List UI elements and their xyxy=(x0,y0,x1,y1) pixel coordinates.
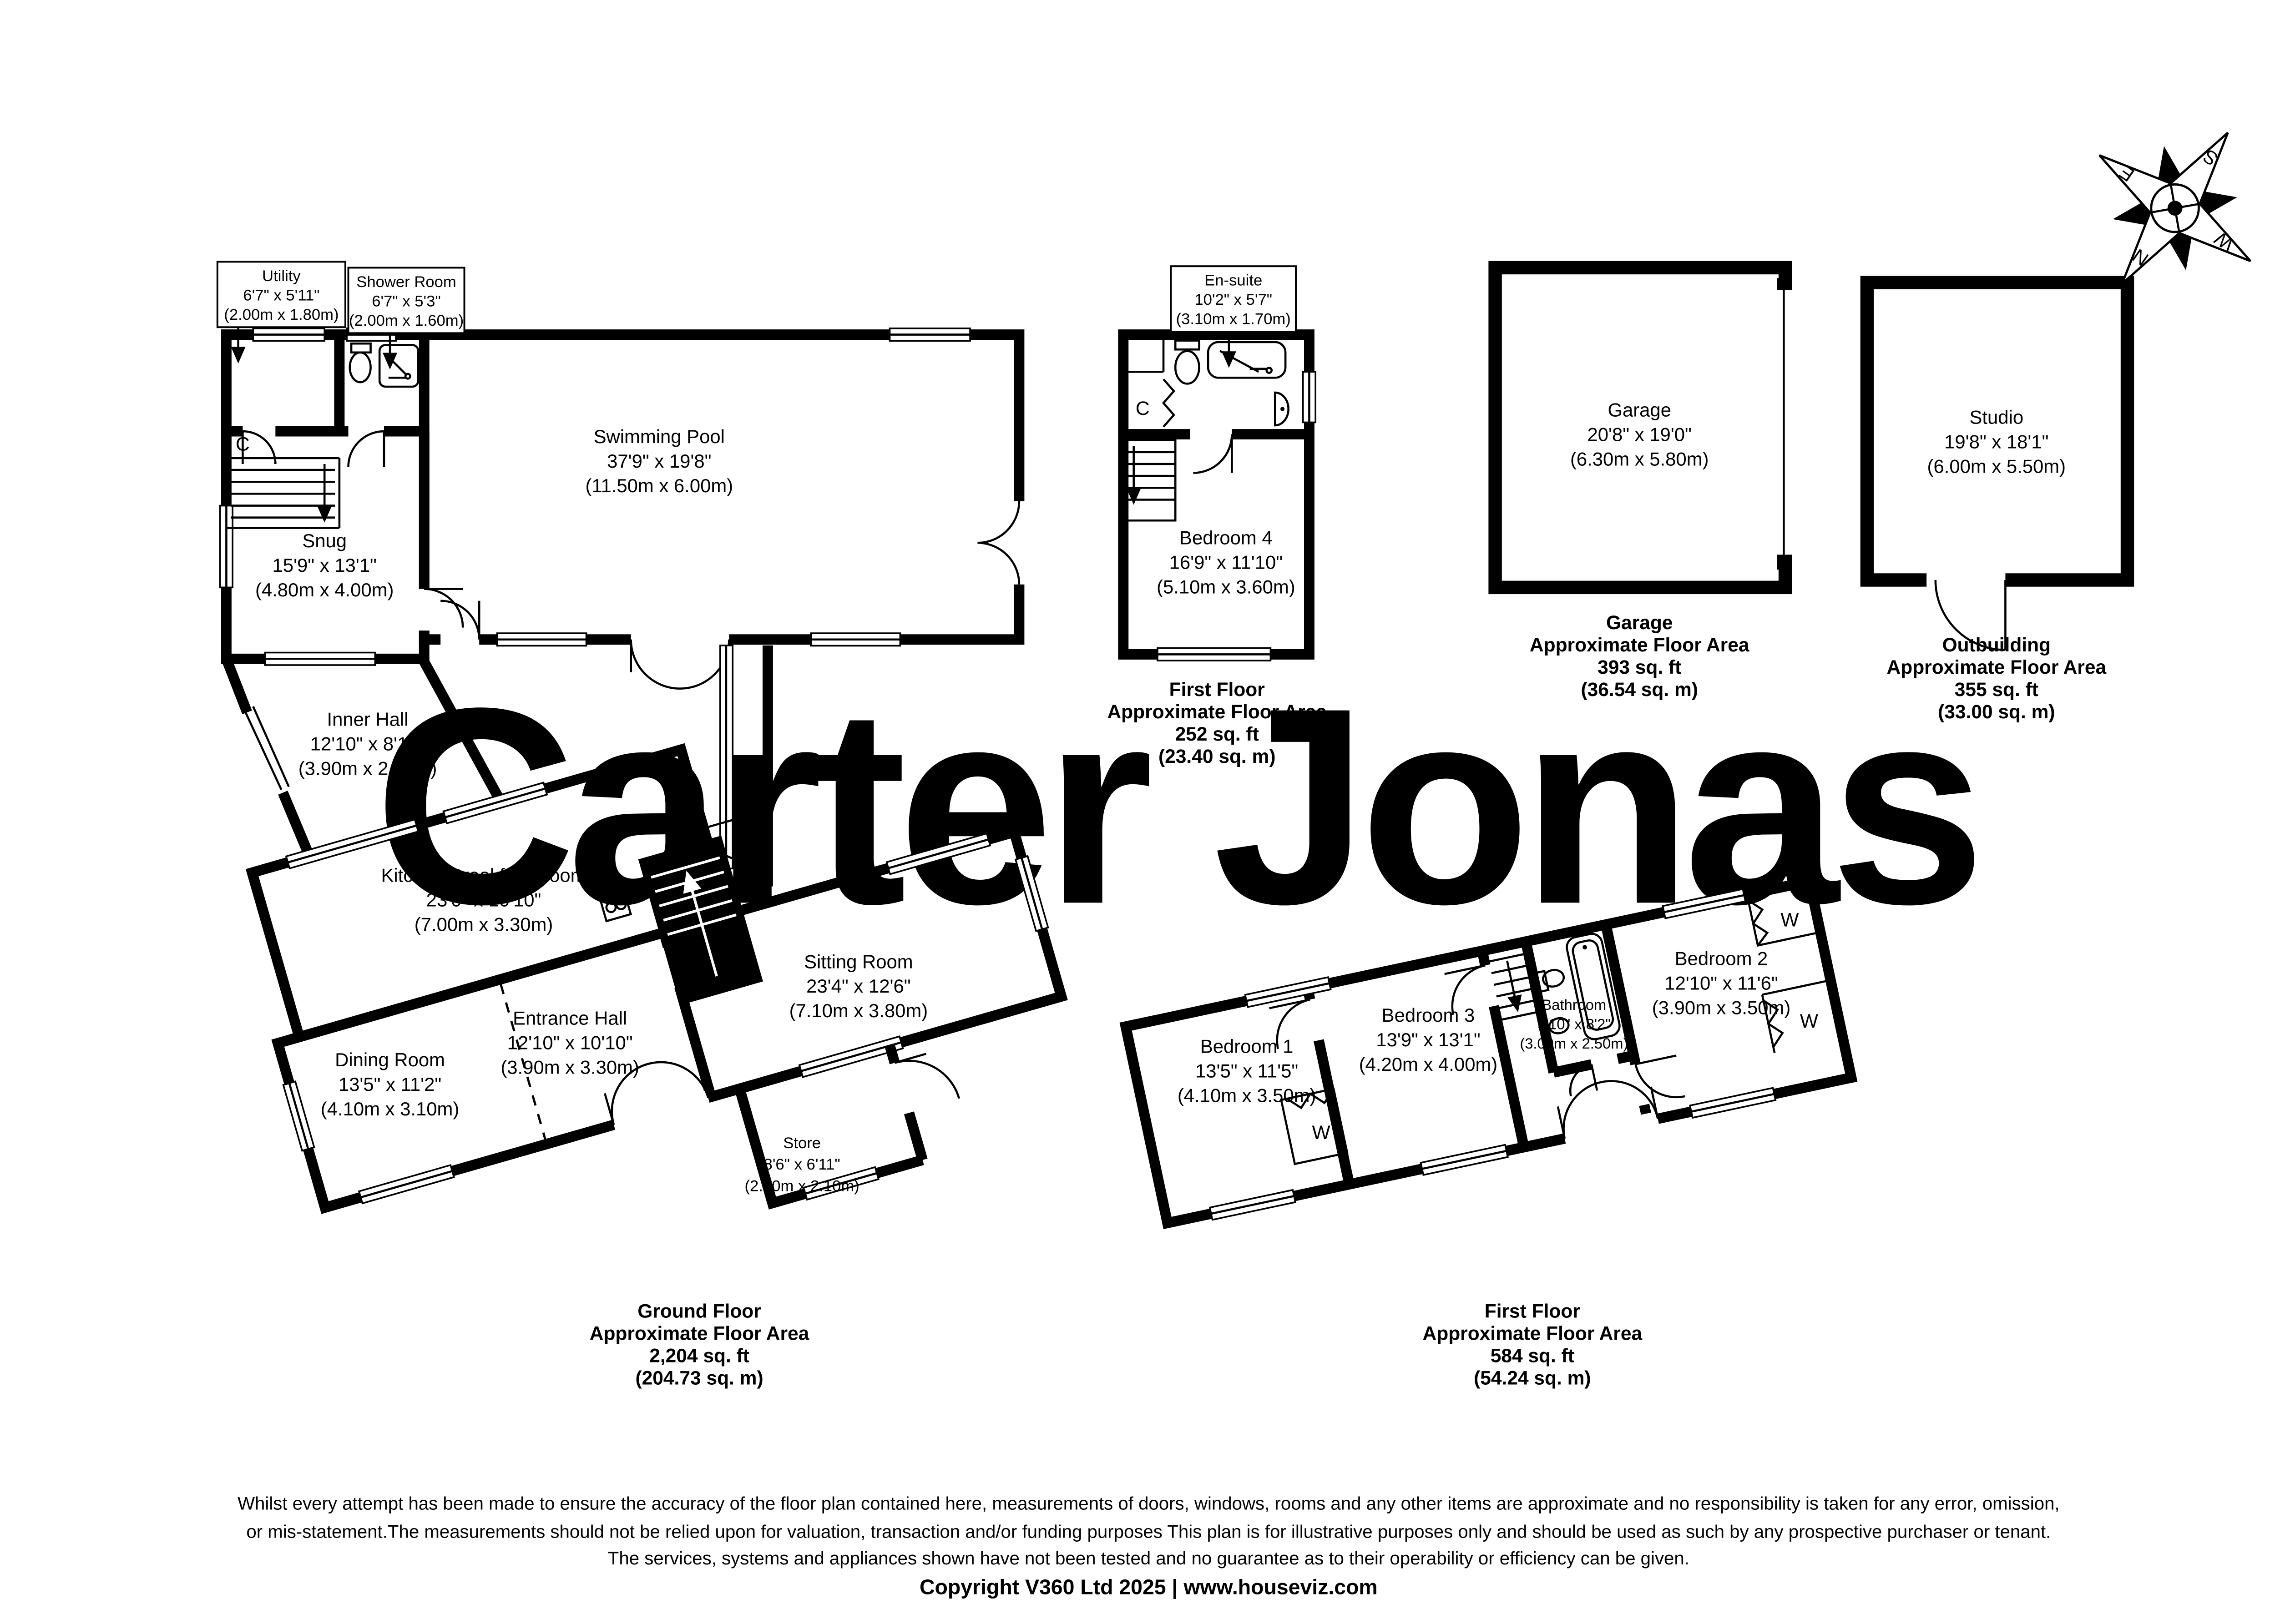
sitting-label-imperial: 23'4" x 12'6" xyxy=(806,975,910,997)
garage-summary-aream: (36.54 sq. m) xyxy=(1581,679,1698,701)
outbuilding-summary-subtitle: Approximate Floor Area xyxy=(1887,657,2107,678)
ground-stairs xyxy=(226,458,339,528)
utility-label-name: Utility xyxy=(262,267,301,285)
dining-label-imperial: 13'5" x 11'2" xyxy=(339,1074,441,1095)
wardrobe-letter-1: W xyxy=(1312,1122,1330,1144)
store-label-name: Store xyxy=(783,1135,821,1152)
ensuite-label-metric: (3.10m x 1.70m) xyxy=(1176,311,1291,328)
utility-label-metric: (2.00m x 1.80m) xyxy=(224,306,339,323)
ground-summary-areaft: 2,204 sq. ft xyxy=(649,1346,749,1367)
annex-room-labels: Bedroom 4 16'9" x 11'10" (5.10m x 3.60m)… xyxy=(1136,398,1295,597)
firstfloor-summary-title: First Floor xyxy=(1485,1301,1580,1322)
floorplan-page: Carter Jonas xyxy=(0,0,2275,1624)
outbuilding-summary-aream: (33.00 sq. m) xyxy=(1938,701,2055,723)
annex-closet-letter: C xyxy=(1136,398,1150,419)
disclaimer-line-3: The services, systems and appliances sho… xyxy=(608,1548,1689,1569)
inner-hall-label-imperial: 12'10" x 8'10" xyxy=(310,733,425,754)
bedroom1-label-metric: (4.10m x 3.50m) xyxy=(1178,1084,1316,1106)
bedroom2-label-name: Bedroom 2 xyxy=(1675,948,1768,969)
bathroom-label-metric: (3.00m x 2.50m) xyxy=(1520,1035,1628,1052)
snug-label-imperial: 15'9" x 13'1" xyxy=(273,555,377,576)
annex-summary-aream: (23.40 sq. m) xyxy=(1158,746,1275,767)
firstfloor-summary-subtitle: Approximate Floor Area xyxy=(1423,1323,1643,1345)
studio-label-name: Studio xyxy=(1970,407,2024,428)
garage-summary-subtitle: Approximate Floor Area xyxy=(1530,635,1749,656)
outbuilding-summary-title: Outbuilding xyxy=(1942,635,2051,656)
first-floor-annex-plan xyxy=(1123,335,1315,661)
bedroom3-label-name: Bedroom 3 xyxy=(1382,1004,1475,1026)
disclaimer-line-1: Whilst every attempt has been made to en… xyxy=(238,1493,2060,1513)
outbuilding-room-labels: Garage 20'8" x 19'0" (6.30m x 5.80m) Stu… xyxy=(1570,399,2066,477)
snug-label-metric: (4.80m x 4.00m) xyxy=(255,579,394,600)
store-label-imperial: 8'6" x 6'11" xyxy=(764,1156,840,1173)
annex-summary-subtitle: Approximate Floor Area xyxy=(1107,701,1327,723)
entrance-label-imperial: 12'10" x 10'10" xyxy=(507,1032,633,1053)
bedroom4-label-imperial: 16'9" x 11'10" xyxy=(1169,551,1283,573)
ensuite-label-name: En-suite xyxy=(1204,272,1262,289)
pool-label-name: Swimming Pool xyxy=(594,426,725,447)
copyright-line: Copyright V360 Ltd 2025 | www.houseviz.c… xyxy=(920,1575,1378,1599)
wardrobe-letter-3: W xyxy=(1800,1011,1818,1032)
bedroom2-label-metric: (3.90m x 3.50m) xyxy=(1652,997,1791,1019)
compass-rose: N E S W xyxy=(2047,80,2275,337)
sitting-label-metric: (7.10m x 3.80m) xyxy=(789,1000,928,1021)
shower-label-imperial: 6'7" x 5'3" xyxy=(372,293,440,310)
ground-windows xyxy=(220,328,970,665)
entrance-label-metric: (3.90m x 3.30m) xyxy=(500,1056,639,1078)
store-label-metric: (2.60m x 2.10m) xyxy=(745,1178,859,1195)
ground-summary-aream: (204.73 sq. m) xyxy=(636,1368,763,1389)
inner-hall-label-metric: (3.90m x 2.70m) xyxy=(298,757,437,779)
bedroom3-label-metric: (4.20m x 4.00m) xyxy=(1359,1054,1498,1075)
studio-label-metric: (6.00m x 5.50m) xyxy=(1927,456,2066,477)
disclaimer-line-2: or mis-statement.The measurements should… xyxy=(246,1521,2051,1542)
shower-label-name: Shower Room xyxy=(356,273,456,291)
annex-stairs xyxy=(1126,440,1175,521)
firstfloor-summary-areaft: 584 sq. ft xyxy=(1491,1346,1574,1367)
inner-hall-label-name: Inner Hall xyxy=(327,708,409,730)
pool-label-metric: (11.50m x 6.00m) xyxy=(585,475,733,496)
kitchen-label-metric: (7.00m x 3.30m) xyxy=(415,914,553,935)
bedroom1-label-imperial: 13'5" x 11'5" xyxy=(1195,1060,1298,1082)
garage-summary-title: Garage xyxy=(1606,612,1673,634)
ensuite-fixtures xyxy=(1175,341,1288,425)
outbuilding-summary-areaft: 355 sq. ft xyxy=(1955,679,2038,701)
ensuite-label-imperial: 10'2" x 5'7" xyxy=(1194,291,1272,308)
kitchen-label-name: Kitchen/Breakfast Room xyxy=(381,865,586,886)
ground-closet-letter: C xyxy=(236,434,250,455)
ground-summary-subtitle: Approximate Floor Area xyxy=(590,1323,809,1345)
bedroom2-label-imperial: 12'10" x 11'6" xyxy=(1664,973,1778,994)
garage-label-metric: (6.30m x 5.80m) xyxy=(1570,448,1709,469)
garage-label-imperial: 20'8" x 19'0" xyxy=(1587,424,1692,445)
floorplan-canvas: Carter Jonas xyxy=(0,0,2275,1624)
shower-label-metric: (2.00m x 1.60m) xyxy=(349,312,464,329)
wardrobe-letter-2: W xyxy=(1780,910,1799,931)
entrance-label-name: Entrance Hall xyxy=(513,1007,627,1029)
bedroom3-label-imperial: 13'9" x 13'1" xyxy=(1376,1029,1480,1050)
garage-label-name: Garage xyxy=(1608,399,1671,420)
bedroom1-label-name: Bedroom 1 xyxy=(1200,1036,1294,1057)
footer-disclaimer: Whilst every attempt has been made to en… xyxy=(238,1493,2060,1599)
bedroom4-label-name: Bedroom 4 xyxy=(1179,527,1273,549)
shower-room-fixtures xyxy=(350,343,418,387)
dining-label-metric: (4.10m x 3.10m) xyxy=(321,1098,460,1120)
kitchen-label-imperial: 23'0" x 10'10" xyxy=(426,889,541,911)
annex-summary-areaft: 252 sq. ft xyxy=(1175,724,1259,745)
dining-label-name: Dining Room xyxy=(335,1049,445,1070)
studio-label-imperial: 19'8" x 18'1" xyxy=(1944,431,2048,453)
sitting-label-name: Sitting Room xyxy=(804,951,913,972)
garage-summary-areaft: 393 sq. ft xyxy=(1598,657,1681,678)
annex-summary-title: First Floor xyxy=(1169,679,1265,701)
bedroom4-label-metric: (5.10m x 3.60m) xyxy=(1157,576,1295,597)
bathroom-label-name: Bathroom xyxy=(1542,996,1607,1013)
bathroom-label-imperial: 9'10" x 8'2" xyxy=(1537,1015,1611,1032)
snug-label-name: Snug xyxy=(302,530,347,551)
firstfloor-summary-aream: (54.24 sq. m) xyxy=(1474,1368,1591,1389)
ground-summary-title: Ground Floor xyxy=(637,1301,761,1322)
pool-label-imperial: 37'9" x 19'8" xyxy=(607,450,711,472)
utility-label-imperial: 6'7" x 5'11" xyxy=(243,287,319,304)
